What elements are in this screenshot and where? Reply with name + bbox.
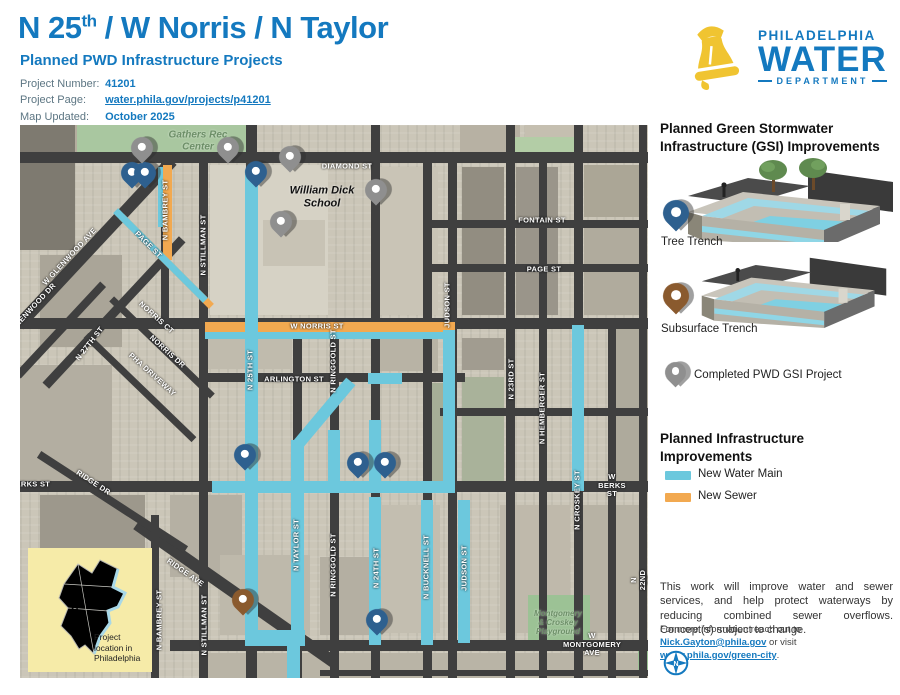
completed-gsi-pin-icon xyxy=(665,362,686,383)
map-pin-blue xyxy=(234,444,256,466)
compass-n-label: N xyxy=(673,661,678,668)
page-subtitle: Planned PWD Infrastructure Projects xyxy=(20,52,578,69)
building-block xyxy=(462,377,504,483)
street-label: N 25TH ST xyxy=(247,350,256,390)
street-label: N BUCKNELL ST xyxy=(423,535,432,599)
tree-trench-pin-icon xyxy=(663,200,689,226)
street-label: N 22ND ST xyxy=(630,570,648,590)
gsi-heading: Planned Green Stormwater Infrastructure … xyxy=(660,120,892,155)
pwd-logo: PHILADELPHIA WATER DEPARTMENT xyxy=(678,12,888,102)
building-block xyxy=(20,365,112,483)
street-label: BERKS ST xyxy=(20,481,50,490)
street-label: NORRIS DR xyxy=(147,334,186,370)
map-pin-gray xyxy=(217,137,239,159)
street-label: PAGE ST xyxy=(133,230,163,260)
subsurface-trench-illustration xyxy=(695,256,893,333)
sewer-label: New Sewer xyxy=(698,490,757,502)
page-title: N 25th / W Norris / N Taylor xyxy=(18,10,578,46)
contact-pre: For more information reach out to xyxy=(660,624,801,635)
inset-caption: Project location in Philadelphia xyxy=(94,632,146,664)
street-label: N 24TH ST xyxy=(373,548,382,588)
title-superscript: th xyxy=(81,12,96,31)
new-water-main-line xyxy=(287,640,300,678)
contact-end: . xyxy=(777,650,780,661)
project-page-row: Project Page: water.phila.gov/projects/p… xyxy=(20,93,578,107)
contact-note: For more information reach out to Nick.G… xyxy=(660,624,893,662)
project-number-row: Project Number: 41201 xyxy=(20,77,578,91)
contact-mid: or visit xyxy=(766,637,796,648)
new-water-main-line xyxy=(212,481,455,493)
building-block xyxy=(20,125,75,250)
water-main-label: New Water Main xyxy=(698,468,783,480)
sewer-swatch xyxy=(665,493,691,502)
street-label: JUDSON ST xyxy=(444,282,453,328)
infra-heading: Planned Infrastructure Improvements xyxy=(660,430,850,465)
map-pin-blue xyxy=(374,452,396,474)
street-label: N BAMBREY ST xyxy=(162,180,171,241)
project-location-star-icon: ★ xyxy=(68,596,81,614)
street-label: N BAMBREY ST xyxy=(156,590,165,651)
street-vertical xyxy=(639,125,647,678)
water-main-swatch xyxy=(665,471,691,480)
project-map: DIAMOND STFONTAIN STPAGE STW NORRIS STAR… xyxy=(20,125,648,678)
subsurface-trench-pin-icon xyxy=(663,283,689,309)
logo-line-water: WATER xyxy=(758,43,887,76)
map-updated-value: October 2025 xyxy=(105,111,175,123)
street-label: N TAYLOR ST xyxy=(293,519,302,571)
new-water-main-line xyxy=(572,325,584,491)
map-pin-gray xyxy=(131,137,153,159)
street-label: N RINGGOLD ST xyxy=(330,533,339,596)
building-block xyxy=(584,165,642,217)
contact-email-link[interactable]: Nick.Gayton@phila.gov xyxy=(660,637,766,648)
map-updated-row: Map Updated: October 2025 xyxy=(20,110,578,124)
completed-gsi-label: Completed PWD GSI Project xyxy=(694,369,842,381)
header: N 25th / W Norris / N Taylor Planned PWD… xyxy=(18,10,578,124)
street-label: DIAMOND ST xyxy=(322,163,373,172)
street-label: N 23RD ST xyxy=(508,358,517,399)
place-label: William Dick School xyxy=(290,184,355,209)
street-label: PAGE ST xyxy=(527,266,561,275)
street-horizontal xyxy=(320,670,648,676)
project-number-value: 41201 xyxy=(105,78,136,90)
street-label: ARLINGTON ST xyxy=(264,376,324,385)
project-number-label: Project Number: xyxy=(20,77,102,91)
pwd-project-flyer: N 25th / W Norris / N Taylor Planned PWD… xyxy=(0,0,900,695)
subsurface-trench-label: Subsurface Trench xyxy=(661,323,758,335)
street-label: N STILLMAN ST xyxy=(200,215,209,276)
map-pin-blue xyxy=(134,162,156,184)
new-water-main-line xyxy=(443,330,455,491)
map-pin-brown xyxy=(232,589,254,611)
map-pin-gray xyxy=(365,179,387,201)
project-page-label: Project Page: xyxy=(20,93,102,107)
map-pin-gray xyxy=(279,146,301,168)
building-block xyxy=(462,167,504,315)
map-pin-blue xyxy=(245,161,267,183)
liberty-bell-icon xyxy=(678,19,750,95)
map-pin-blue xyxy=(347,452,369,474)
building-block xyxy=(516,167,558,315)
philadelphia-inset-map: ★ Project location in Philadelphia xyxy=(28,548,152,672)
place-label: Montgomery & Croskey Playground xyxy=(534,609,582,637)
street-vertical xyxy=(506,125,515,678)
street-label: FONTAIN ST xyxy=(518,217,565,226)
tree-trench-label: Tree Trench xyxy=(661,236,723,248)
logo-text: PHILADELPHIA WATER DEPARTMENT xyxy=(758,28,887,86)
logo-line-department: DEPARTMENT xyxy=(758,76,887,86)
tree-trench-illustration xyxy=(688,158,893,247)
new-water-main-line xyxy=(368,373,402,384)
building-block xyxy=(462,338,504,370)
street-label: JUDSON ST xyxy=(461,545,470,591)
project-page-link[interactable]: water.phila.gov/projects/p41201 xyxy=(105,94,271,106)
street-label: N HEMBERGER ST xyxy=(539,372,548,444)
north-compass-icon: N xyxy=(663,650,689,676)
street-label: W BERKS ST xyxy=(594,473,630,499)
street-label: N STILLMAN ST xyxy=(201,595,210,656)
map-pin-gray xyxy=(270,211,292,233)
street-vertical xyxy=(608,323,616,678)
map-updated-label: Map Updated: xyxy=(20,110,102,124)
map-pin-blue xyxy=(366,609,388,631)
street-label: N CROSKEY ST xyxy=(574,470,583,530)
building-block xyxy=(320,557,370,635)
street-label: N RINGGOLD ST xyxy=(330,329,339,392)
